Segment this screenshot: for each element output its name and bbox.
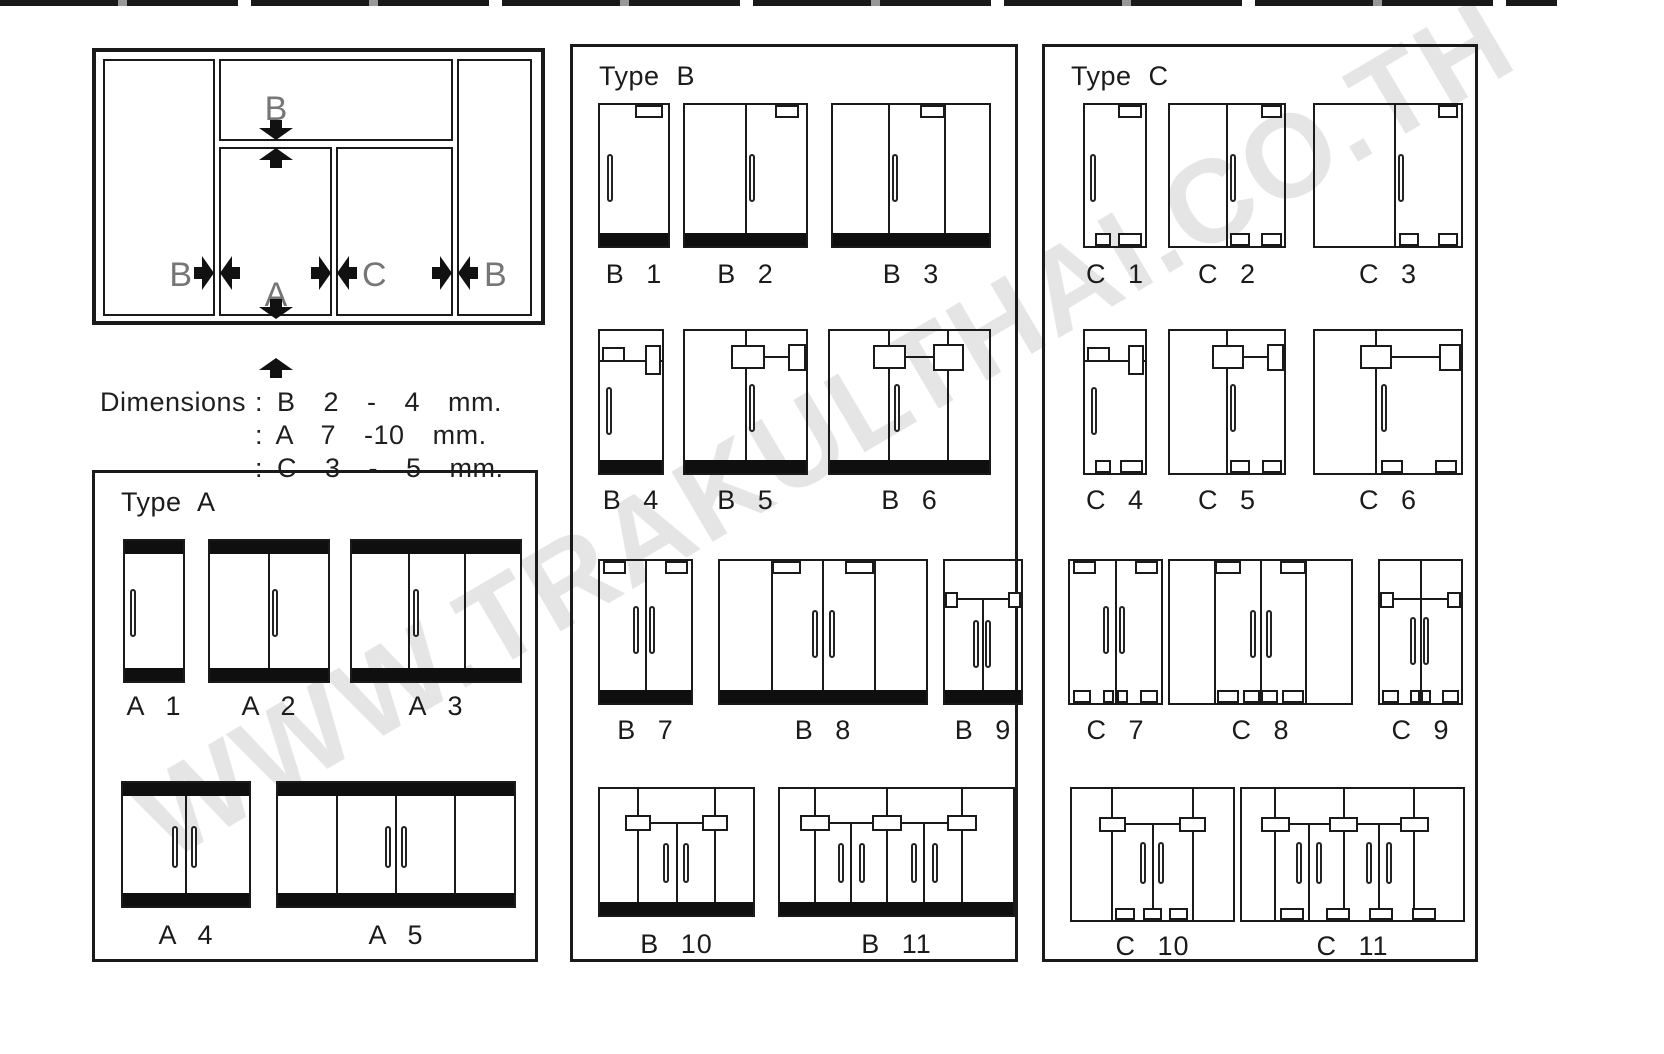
- figure-a3: [350, 539, 522, 683]
- figure-label: C 7: [1086, 715, 1144, 746]
- fitting-box: [872, 815, 902, 830]
- fitting-box: [1087, 347, 1110, 361]
- door-divider-line: [1308, 824, 1310, 920]
- door-handle: [892, 154, 898, 202]
- top-rail-bar: [210, 541, 328, 554]
- top-rail-bar: [125, 541, 183, 554]
- fitting-box: [945, 592, 958, 608]
- panel-divider-line: [874, 561, 876, 703]
- fitting-box: [1261, 817, 1290, 833]
- fitting-box: [1128, 345, 1144, 375]
- fitting-box: [1008, 592, 1021, 608]
- door-handle: [1366, 842, 1372, 884]
- bottom-rail-bar: [685, 460, 806, 473]
- bottom-rail-bar: [210, 668, 328, 681]
- door-handle: [838, 843, 844, 883]
- fitting-box: [1360, 345, 1392, 369]
- gap-label-b-right: B: [484, 256, 507, 294]
- bottom-rail-bar: [600, 460, 662, 473]
- door-handle: [1158, 842, 1164, 884]
- panel-divider-line: [1343, 789, 1345, 920]
- door-handle: [385, 826, 391, 868]
- panel-divider-line: [745, 105, 747, 246]
- fitting-box: [1381, 460, 1403, 473]
- fitting-box: [602, 347, 626, 361]
- figure-c3: [1313, 103, 1463, 248]
- fitting-box: [1115, 908, 1134, 920]
- door-handle: [606, 387, 612, 435]
- fitting-box: [1135, 561, 1159, 574]
- bottom-rail-bar: [720, 690, 926, 703]
- gap-label-c: C: [362, 256, 387, 294]
- panel-divider-line: [1305, 561, 1307, 703]
- figure-label: A 4: [158, 920, 213, 951]
- figure-c6: [1313, 329, 1463, 475]
- door-handle: [1398, 154, 1404, 202]
- fitting-box: [1282, 690, 1304, 703]
- fitting-box: [1267, 344, 1284, 371]
- figure-label: C 10: [1115, 931, 1189, 962]
- fitting-box: [1438, 105, 1458, 118]
- fitting-box: [635, 105, 662, 118]
- figure-c5: [1168, 329, 1286, 475]
- door-handle: [683, 843, 689, 883]
- fitting-box: [1217, 690, 1239, 703]
- figure-label: A 5: [368, 920, 423, 951]
- panel-divider-line: [395, 783, 397, 906]
- bottom-rail-bar: [830, 460, 989, 473]
- fitting-box: [1380, 592, 1394, 608]
- figure-b10: [598, 787, 755, 917]
- door-handle: [633, 606, 639, 654]
- fitting-box: [1399, 233, 1419, 246]
- figure-b2: [683, 103, 808, 248]
- figure-label: B 4: [603, 485, 660, 516]
- type-a-title: Type A: [121, 487, 216, 518]
- door-handle: [1090, 154, 1096, 202]
- panel-divider-line: [185, 783, 187, 906]
- fitting-box: [845, 561, 875, 574]
- figure-label: C 5: [1198, 485, 1256, 516]
- door-handle: [663, 843, 669, 883]
- type-c-title: Type C: [1071, 61, 1169, 92]
- fitting-box: [1261, 105, 1282, 118]
- figure-c4: [1083, 329, 1147, 475]
- fitting-box: [1410, 690, 1420, 703]
- fitting-box: [1280, 908, 1304, 920]
- figure-label: B 3: [883, 259, 940, 290]
- door-handle: [1230, 384, 1236, 432]
- fitting-box: [1095, 460, 1112, 473]
- figure-label: B 6: [881, 485, 938, 516]
- fitting-box: [1120, 460, 1143, 473]
- fitting-box: [1095, 233, 1112, 246]
- figure-label: C 9: [1391, 715, 1449, 746]
- frame-outline: [94, 50, 543, 323]
- bottom-rail-bar: [685, 233, 806, 246]
- panel-divider-line: [714, 789, 716, 915]
- figure-b6: [828, 329, 991, 475]
- dimensions-note-line-b: : B 2 - 4 mm.: [255, 386, 504, 419]
- door-handle: [749, 154, 755, 202]
- panel-divider-line: [454, 783, 456, 906]
- fitting-box: [603, 561, 627, 574]
- panel-divider-line: [888, 105, 890, 246]
- fitting-box: [800, 815, 830, 830]
- panel-divider-line: [1111, 789, 1113, 920]
- fitting-box: [775, 105, 799, 118]
- fitting-box: [1261, 233, 1282, 246]
- figure-b4: [598, 329, 664, 475]
- door-divider-line: [1152, 824, 1154, 920]
- fitting-box: [933, 344, 965, 371]
- fitting-box: [1073, 561, 1097, 574]
- fitting-box: [1243, 690, 1259, 703]
- fitting-box: [1117, 690, 1128, 703]
- panel-divider-line: [1260, 561, 1262, 703]
- fitting-box: [1103, 690, 1114, 703]
- fitting-box: [1435, 460, 1457, 473]
- door-handle: [1381, 384, 1387, 432]
- figure-a4: [121, 781, 251, 908]
- door-divider-line: [1378, 824, 1380, 920]
- panel-divider-line: [268, 541, 270, 681]
- figure-label: A 1: [126, 691, 181, 722]
- door-handle: [1296, 842, 1302, 884]
- arrow-up-icon: [259, 358, 293, 378]
- fitting-box: [920, 105, 945, 118]
- fitting-box: [1400, 817, 1429, 833]
- gap-label-b-left: B: [169, 256, 192, 294]
- fitting-box: [1438, 233, 1458, 246]
- fitting-box: [625, 815, 651, 830]
- panel-divider-line: [1214, 561, 1216, 703]
- figure-label: C 11: [1316, 931, 1388, 962]
- door-handle: [859, 843, 865, 883]
- figure-label: C 3: [1359, 259, 1417, 290]
- figure-label: B 1: [606, 259, 663, 290]
- fitting-box: [1421, 690, 1431, 703]
- top-rail-bar: [278, 783, 514, 796]
- arrow-left-icon: [220, 256, 240, 290]
- fitting-box: [947, 815, 977, 830]
- arrow-right-icon: [311, 256, 331, 290]
- bottom-rail-bar: [833, 233, 989, 246]
- type-box-c: Type C C 1C 2C 3C 4C 5C 6C 7C 8C 9C 10C …: [1042, 44, 1478, 962]
- figure-a5: [276, 781, 516, 908]
- bottom-rail-bar: [780, 902, 1013, 915]
- door-handle: [649, 606, 655, 654]
- door-handle: [1423, 617, 1429, 665]
- bottom-rail-bar: [600, 690, 691, 703]
- figure-label: C 8: [1231, 715, 1289, 746]
- fitting-box: [1442, 690, 1458, 703]
- door-handle: [1119, 606, 1125, 654]
- bottom-rail-bar: [278, 893, 514, 906]
- door-handle: [401, 826, 407, 868]
- middle-panel-outline: [337, 148, 452, 315]
- fitting-box: [1329, 817, 1358, 833]
- figure-c10: [1070, 787, 1235, 922]
- door-handle: [130, 589, 136, 637]
- transom-panel-outline: [220, 60, 452, 140]
- door-handle: [1250, 610, 1256, 658]
- fitting-box: [1118, 233, 1142, 246]
- fitting-box: [1179, 817, 1206, 833]
- door-handle: [272, 589, 278, 637]
- figure-label: B 11: [861, 929, 932, 960]
- figure-b7: [598, 559, 693, 705]
- fitting-box: [772, 561, 802, 574]
- door-handle: [894, 384, 900, 432]
- door-handle: [413, 589, 419, 637]
- door-handle: [1386, 842, 1392, 884]
- figure-label: B 7: [617, 715, 674, 746]
- door-handle: [973, 620, 979, 668]
- figure-label: B 10: [640, 929, 713, 960]
- panel-divider-line: [1274, 789, 1276, 920]
- door-handle: [172, 826, 178, 868]
- door-handle: [1140, 842, 1146, 884]
- fitting-box: [1118, 105, 1142, 118]
- panel-divider-line: [886, 789, 888, 915]
- figure-label: B 8: [795, 715, 852, 746]
- panel-divider-line: [1413, 789, 1415, 920]
- figure-label: B 9: [955, 715, 1012, 746]
- figure-c7: [1068, 559, 1163, 705]
- arrow-right-icon: [194, 256, 214, 290]
- panel-divider-line: [944, 105, 946, 246]
- figure-a2: [208, 539, 330, 683]
- bottom-rail-bar: [123, 893, 249, 906]
- fitting-box: [1262, 460, 1281, 473]
- panel-divider-line: [408, 541, 410, 681]
- panel-divider-line: [822, 561, 824, 703]
- panel-divider-line: [961, 789, 963, 915]
- fitting-box: [1230, 460, 1249, 473]
- fitting-box: [1073, 690, 1091, 703]
- type-b-title: Type B: [599, 61, 695, 92]
- figure-label: B 2: [717, 259, 774, 290]
- fitting-box: [645, 345, 662, 375]
- door-handle: [932, 843, 938, 883]
- panel-divider-line: [464, 541, 466, 681]
- door-handle: [985, 620, 991, 668]
- figure-c1: [1083, 103, 1147, 248]
- fitting-box: [788, 344, 806, 371]
- panel-divider-line: [645, 561, 647, 703]
- fitting-box: [1280, 561, 1306, 574]
- dimensions-note-label: Dimensions: [100, 386, 255, 419]
- figure-a1: [123, 539, 185, 683]
- figure-label: A 3: [408, 691, 463, 722]
- fitting-box: [1212, 345, 1244, 369]
- fitting-box: [1447, 592, 1461, 608]
- door-handle: [1316, 842, 1322, 884]
- bottom-rail-bar: [125, 668, 183, 681]
- type-box-b: Type B B 1B 2B 3B 4B 5B 6B 7B 8B 9B 10B …: [570, 44, 1018, 962]
- panel-divider-line: [1192, 789, 1194, 920]
- figure-label: B 5: [717, 485, 774, 516]
- fitting-box: [731, 345, 765, 369]
- panel-divider-line: [1115, 561, 1117, 703]
- figure-c9: [1378, 559, 1463, 705]
- fitting-box: [1412, 908, 1436, 920]
- bottom-rail-bar: [945, 690, 1021, 703]
- fitting-box: [1261, 690, 1277, 703]
- arrow-up-icon: [259, 148, 293, 168]
- figure-label: C 4: [1086, 485, 1144, 516]
- panel-divider-line: [771, 561, 773, 703]
- door-handle: [607, 154, 613, 202]
- door-handle: [1091, 387, 1097, 435]
- door-divider-line: [982, 599, 984, 703]
- fitting-box: [1140, 690, 1158, 703]
- door-handle: [1266, 610, 1272, 658]
- door-handle: [812, 610, 818, 658]
- figure-label: C 6: [1359, 485, 1417, 516]
- panel-divider-line: [1420, 561, 1422, 703]
- fitting-box: [1169, 908, 1188, 920]
- fitting-box: [665, 561, 689, 574]
- fitting-box: [1099, 817, 1126, 833]
- arrow-left-icon: [458, 256, 478, 290]
- door-handle: [191, 826, 197, 868]
- panel-divider-line: [1394, 105, 1396, 246]
- door-handle: [1410, 617, 1416, 665]
- top-rail-bar: [352, 541, 520, 554]
- dimension-diagram: B B C B A: [92, 48, 545, 380]
- figure-label: A 2: [241, 691, 296, 722]
- panel-divider-line: [814, 789, 816, 915]
- arrow-right-icon: [432, 256, 452, 290]
- panel-divider-line: [637, 789, 639, 915]
- fitting-box: [1382, 690, 1398, 703]
- figure-label: C 1: [1086, 259, 1144, 290]
- figure-c11: [1240, 787, 1465, 922]
- type-box-a: Type A A 1A 2A 3A 4A 5: [92, 470, 538, 962]
- fitting-box: [1369, 908, 1393, 920]
- door-handle: [1103, 606, 1109, 654]
- fitting-box: [1143, 908, 1162, 920]
- top-rail-bar: [123, 783, 249, 796]
- fitting-box: [702, 815, 728, 830]
- bottom-rail-bar: [352, 668, 520, 681]
- figure-c8: [1168, 559, 1353, 705]
- figure-b5: [683, 329, 808, 475]
- fitting-box: [1326, 908, 1350, 920]
- figure-b9: [943, 559, 1023, 705]
- bottom-rail-bar: [600, 902, 753, 915]
- bottom-rail-bar: [600, 233, 668, 246]
- scan-artifact-line: [0, 0, 1557, 6]
- figure-label: C 2: [1198, 259, 1256, 290]
- fitting-box: [873, 345, 906, 369]
- figure-c2: [1168, 103, 1286, 248]
- fitting-box: [1230, 233, 1249, 246]
- figure-b1: [598, 103, 670, 248]
- figure-b11: [778, 787, 1015, 917]
- door-handle: [749, 384, 755, 432]
- dimensions-note-line-a: : A 7 -10 mm.: [255, 419, 504, 452]
- door-handle: [1230, 154, 1236, 202]
- door-handle: [829, 610, 835, 658]
- door-handle: [911, 843, 917, 883]
- fitting-box: [1215, 561, 1241, 574]
- figure-b3: [831, 103, 991, 248]
- panel-divider-line: [1226, 105, 1228, 246]
- arrow-left-icon: [337, 256, 357, 290]
- panel-divider-line: [336, 783, 338, 906]
- figure-b8: [718, 559, 928, 705]
- fitting-box: [1439, 344, 1461, 371]
